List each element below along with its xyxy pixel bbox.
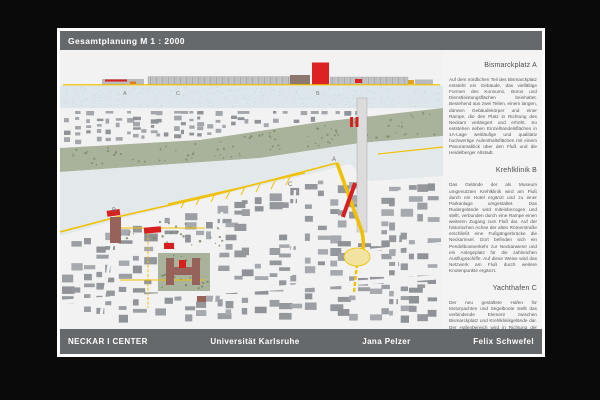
elevation-label-c: C: [176, 91, 180, 97]
footer-bar: NECKAR I CENTER Universität Karlsruhe Ja…: [60, 329, 542, 354]
section-bismarckplatz: Bismarckplatz A Auf dem nördlichen Teil …: [449, 62, 537, 156]
site-plan-svg: A C B: [60, 50, 443, 329]
project-name: NECKAR I CENTER: [68, 337, 148, 346]
bismarckplatz-plaza: [344, 248, 370, 266]
section-yachthafen: Yachthafen C Der neu gestaltete Hafen fü…: [449, 285, 537, 329]
water-texture-band: [60, 86, 443, 109]
section-body: Der neu gestaltete Hafen für Motoryachte…: [449, 300, 537, 329]
boat-landing-1: [350, 117, 353, 127]
elevation-red-tower: [312, 63, 329, 85]
section-body: Das Gelände der als Museum umgenutzten K…: [449, 182, 537, 274]
plan-label-b: B: [112, 208, 116, 214]
text-column: Bismarckplatz A Auf dem nördlichen Teil …: [443, 50, 542, 329]
poster-board: Gesamtplanung M 1 : 2000: [57, 28, 545, 357]
elevation-label-b: B: [316, 91, 320, 97]
plan-label-c: C: [288, 182, 293, 188]
plan-label-a: A: [332, 157, 336, 163]
section-heading: Krehlklinik B: [449, 167, 537, 174]
elevation-baseline: [63, 84, 440, 85]
section-heading: Yachthafen C: [449, 285, 537, 292]
elevation-label-a: A: [123, 91, 127, 97]
author-1: Jana Pelzer: [362, 337, 410, 346]
author-2: Felix Schwefel: [473, 337, 534, 346]
presentation-board-page: Gesamtplanung M 1 : 2000: [0, 0, 600, 400]
section-krehlklinik: Krehlklinik B Das Gelände der als Museum…: [449, 167, 537, 274]
boat-landing-2: [356, 117, 359, 127]
university-name: Universität Karlsruhe: [210, 337, 299, 346]
section-heading: Bismarckplatz A: [449, 62, 537, 69]
museum-red-annex: [179, 260, 186, 268]
title-bar: Gesamtplanung M 1 : 2000: [60, 31, 542, 50]
board-content: A C B: [60, 50, 542, 329]
section-body: Auf dem nördlichen Teil des Bismarckplat…: [449, 77, 537, 156]
site-plan-map: A C B: [60, 50, 443, 329]
page-title: Gesamtplanung M 1 : 2000: [68, 36, 185, 46]
